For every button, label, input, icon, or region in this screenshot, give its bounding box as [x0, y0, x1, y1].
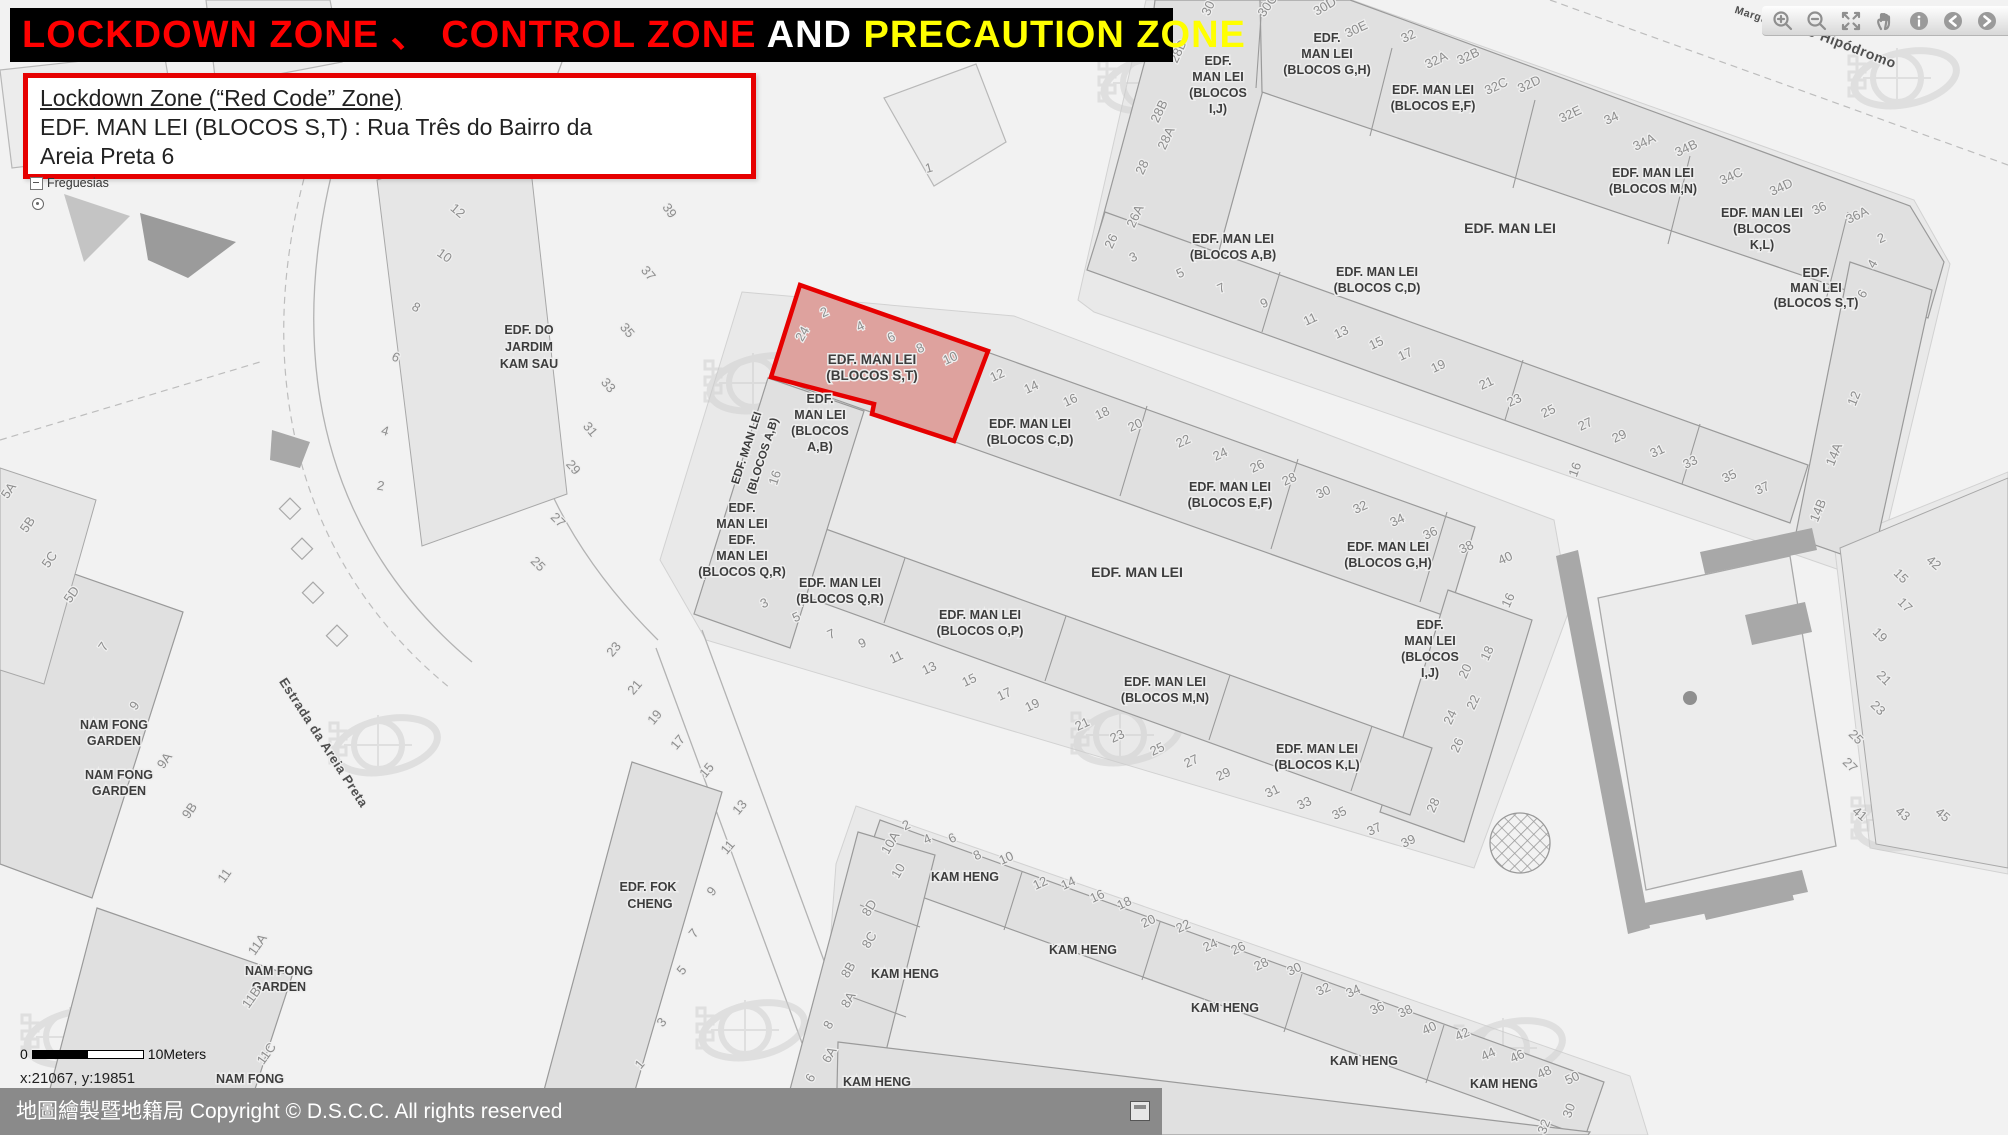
map-toolbar	[1762, 6, 2008, 36]
building-label: EDF. MAN LEI	[799, 576, 881, 590]
building-label: (BLOCOS S,T)	[1774, 296, 1859, 310]
building-label: EDF.	[1416, 618, 1443, 632]
map-application: EDF.MAN LEI(BLOCOSI,J)EDF.MAN LEI(BLOCOS…	[0, 0, 2008, 1135]
hatched-circle	[1490, 813, 1550, 873]
building-label: EDF. MAN LEI	[1192, 232, 1274, 246]
forward-icon	[1975, 9, 1999, 33]
copyright-text: 地圖繪製暨地籍局 Copyright © D.S.C.C. All rights…	[16, 1100, 562, 1123]
building-label: EDF. MAN LEI	[1276, 742, 1358, 756]
scale-meters-label: 10Meters	[148, 1046, 206, 1062]
building-label: (BLOCOS K,L)	[1274, 758, 1359, 772]
building-label: (BLOCOS Q,R)	[796, 592, 884, 606]
full-extent-button[interactable]	[1838, 8, 1864, 34]
building-label: EDF. MAN LEI	[939, 608, 1021, 622]
copyright-bar: 地圖繪製暨地籍局 Copyright © D.S.C.C. All rights…	[0, 1088, 1162, 1135]
building-label: EDF. MAN LEI	[1721, 206, 1803, 220]
building-label: GARDEN	[92, 784, 146, 798]
tree-collapse-icon[interactable]	[30, 177, 43, 190]
building-label: A,B)	[807, 440, 833, 454]
building-label: EDF.	[728, 501, 755, 515]
building-label: KAM HENG	[1191, 1001, 1259, 1015]
building-label: (BLOCOS M,N)	[1609, 182, 1697, 196]
building-label: GARDEN	[87, 734, 141, 748]
lockdown-info-line2: Areia Preta 6	[40, 142, 739, 171]
building-label: I,J)	[1421, 666, 1439, 680]
building-label: (BLOCOS	[1189, 86, 1247, 100]
building-label: (BLOCOS C,D)	[1334, 281, 1421, 295]
building-label: KAM HENG	[1049, 943, 1117, 957]
zoom-in-button[interactable]	[1770, 8, 1796, 34]
zoom-out-button[interactable]	[1804, 8, 1830, 34]
forward-button[interactable]	[1974, 8, 2000, 34]
building-label: JARDIM	[505, 340, 553, 354]
building-label: KAM SAU	[500, 357, 558, 371]
building-label: MAN LEI	[794, 408, 845, 422]
lockdown-info-line1: EDF. MAN LEI (BLOCOS S,T) : Rua Três do …	[40, 113, 739, 142]
building-label: I,J)	[1209, 102, 1227, 116]
building-label: EDF. MAN LEI	[1612, 166, 1694, 180]
building-label: (BLOCOS	[1401, 650, 1459, 664]
back-button[interactable]	[1940, 8, 1966, 34]
building-label: EDF. MAN LEI	[1336, 265, 1418, 279]
scale-bar-graphic	[32, 1050, 144, 1059]
building-label: (BLOCOS G,H)	[1283, 63, 1371, 77]
building-label: NAM FONG	[85, 768, 153, 782]
building-label: KAM HENG	[1470, 1077, 1538, 1091]
building-label: EDF. MAN LEI	[1392, 83, 1474, 97]
building-label: KAM HENG	[1330, 1054, 1398, 1068]
building-label: (BLOCOS A,B)	[1190, 248, 1276, 262]
building-label: K,L)	[1750, 238, 1774, 252]
pan-icon	[1873, 9, 1897, 33]
building-label: KAM HENG	[843, 1075, 911, 1089]
page-title: LOCKDOWN ZONE 、 CONTROL ZONE AND PRECAUT…	[10, 8, 1173, 62]
building-label: EDF. MAN LEI	[1124, 675, 1206, 689]
window-icon[interactable]	[1130, 1101, 1150, 1121]
building-label: (BLOCOS Q,R)	[698, 565, 786, 579]
title-segment: LOCKDOWN ZONE 、 CONTROL ZONE	[22, 14, 767, 56]
building-label: (BLOCOS G,H)	[1344, 556, 1432, 570]
identify-button[interactable]	[1906, 8, 1932, 34]
scale-bar: 0 10Meters	[20, 1046, 206, 1062]
building-label: EDF. FOK	[620, 880, 677, 894]
building-label: (BLOCOS M,N)	[1121, 691, 1209, 705]
building-label: EDF. MAN LEI	[1189, 480, 1271, 494]
building-label: MAN LEI	[1404, 634, 1455, 648]
building-label: NAM FONG	[80, 718, 148, 732]
lockdown-info-title: Lockdown Zone (“Red Code” Zone)	[40, 84, 739, 113]
building-label: EDF.	[806, 392, 833, 406]
building-label: (BLOCOS C,D)	[987, 433, 1074, 447]
building-label: EDF.	[1204, 54, 1231, 68]
building-label: CHENG	[627, 897, 672, 911]
building-label: (BLOCOS S,T)	[826, 368, 918, 383]
building-label: EDF. DO	[504, 323, 554, 337]
building-label: EDF. MAN LEI	[1347, 540, 1429, 554]
cursor-coordinates: x:21067, y:19851	[20, 1070, 135, 1087]
building-label: MAN LEI	[1790, 281, 1841, 295]
building-label: EDF.	[1313, 31, 1340, 45]
zoom-in-icon	[1771, 9, 1795, 33]
lockdown-info-box: Lockdown Zone (“Red Code” Zone) EDF. MAN…	[23, 73, 756, 179]
building-label: EDF.	[728, 533, 755, 547]
building-label: MAN LEI	[1192, 70, 1243, 84]
building-label: MAN LEI	[716, 549, 767, 563]
zoom-out-icon	[1805, 9, 1829, 33]
building-label: EDF. MAN LEI	[1091, 564, 1183, 580]
pan-button[interactable]	[1872, 8, 1898, 34]
building-label: NAM FONG	[245, 964, 313, 978]
title-segment: PRECAUTION ZONE	[864, 14, 1246, 56]
building-label: (BLOCOS O,P)	[937, 624, 1024, 638]
building-label: KAM HENG	[871, 967, 939, 981]
back-icon	[1941, 9, 1965, 33]
building-label: MAN LEI	[716, 517, 767, 531]
building-label: (BLOCOS E,F)	[1391, 99, 1476, 113]
building-label: MAN LEI	[1301, 47, 1352, 61]
building-label: (BLOCOS	[791, 424, 849, 438]
building-label: (BLOCOS E,F)	[1188, 496, 1273, 510]
full-extent-icon	[1839, 9, 1863, 33]
layers-control[interactable]: Freguesias	[30, 176, 109, 210]
identify-icon	[1907, 9, 1931, 33]
building-label: KAM HENG	[931, 870, 999, 884]
scale-zero-label: 0	[20, 1046, 28, 1062]
title-segment: AND	[767, 14, 864, 56]
building-label: EDF. MAN LEI	[828, 352, 917, 367]
building-label: (BLOCOS	[1733, 222, 1791, 236]
building-label: EDF. MAN LEI	[989, 417, 1071, 431]
building-label: EDF.	[1802, 266, 1829, 280]
layer-radio-icon[interactable]	[32, 198, 44, 210]
building-label: EDF. MAN LEI	[1464, 220, 1556, 236]
layer-label: Freguesias	[47, 176, 109, 190]
building-label: NAM FONG	[216, 1072, 284, 1086]
